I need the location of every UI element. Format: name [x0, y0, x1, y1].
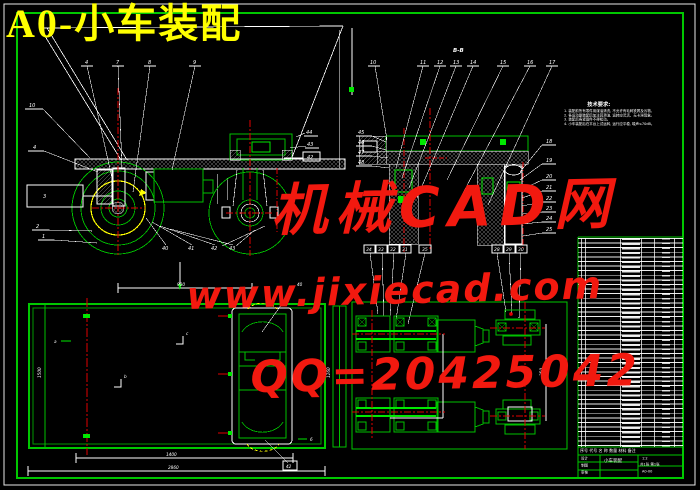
callout: 10: [370, 60, 376, 66]
section-label: B-B: [453, 48, 464, 54]
motor: [146, 169, 227, 204]
callout: 47: [358, 150, 365, 156]
bom-text-column: [622, 238, 640, 447]
technical-notes-heading: 技术要求:: [564, 102, 634, 109]
callout: 29: [506, 247, 512, 253]
callout: 45: [358, 130, 364, 136]
callout: 41: [188, 246, 194, 252]
callout: 33: [378, 247, 384, 253]
callout: 7: [116, 60, 120, 66]
bom-header: 序号 代号 名 称 数量 材料 备注: [580, 449, 636, 453]
callout: 14: [470, 60, 476, 66]
callout: 32: [390, 247, 396, 253]
dim-label: 1400: [166, 452, 177, 457]
callout: 3: [43, 194, 46, 200]
ref-label: c: [186, 331, 189, 336]
title-block-sheet: 共1张 第1张: [640, 463, 660, 467]
title-block-code: A0-00: [642, 470, 652, 474]
callout: 40: [162, 246, 168, 252]
callout: 42: [286, 464, 292, 469]
title-block-row-check: 审核: [581, 471, 588, 475]
callout: 16: [527, 60, 533, 66]
callout: 9: [193, 60, 196, 66]
title-block-name: 小车装配: [604, 459, 622, 464]
drawing-title: A0-小车装配: [6, 4, 242, 44]
callout: 12: [437, 60, 443, 66]
technical-note-line: 4. 小车装配后在平台上试运转, 运行应平稳, 噪声≤70dB。: [564, 122, 663, 126]
bom-qty-column: [662, 238, 670, 447]
callout: 10: [29, 103, 35, 109]
callout: 18: [546, 139, 552, 145]
watermark-qq-number: QQ=20425042: [250, 345, 640, 403]
dim-label: 2860: [168, 465, 179, 470]
ref-label: b: [124, 374, 127, 379]
lower-axle-assembly: [356, 398, 489, 432]
cad-drawing-canvas[interactable]: 4 7 8 9 10 4 3 2 1 40 41 42 43 44 43 42 …: [0, 0, 700, 490]
dim-label: 900: [177, 282, 185, 287]
callout: 42: [211, 246, 217, 252]
callout: 13: [453, 60, 459, 66]
callout: 2: [36, 224, 39, 230]
title-block-scale: 1:2: [642, 457, 648, 461]
callout: 44: [306, 130, 312, 136]
dim-label: 1500: [37, 367, 42, 378]
callout: 43: [307, 142, 313, 148]
callout: 35: [422, 247, 428, 253]
callout: 28: [494, 247, 500, 253]
watermark-site-name: 机械CAD网: [270, 159, 619, 247]
ref-label: 6: [310, 437, 313, 442]
callout: 4: [33, 145, 36, 151]
title-block-row-draw: 制图: [581, 464, 588, 468]
callout: 31: [402, 247, 408, 253]
ref-label: a: [54, 339, 57, 344]
callout: 42: [307, 155, 313, 161]
callout: 11: [420, 60, 426, 66]
callout: 34: [366, 247, 372, 253]
callout: 15: [500, 60, 506, 66]
callout: 17: [549, 60, 556, 66]
callout: 30: [518, 247, 524, 253]
callout: 8: [148, 60, 151, 66]
callout: 1: [42, 234, 45, 240]
title-block-row-design: 设计: [581, 457, 588, 461]
callout: 46: [358, 140, 364, 146]
callout: 4: [85, 60, 88, 66]
callout: 43: [229, 246, 235, 252]
technical-notes: 技术要求: 1. 装配前所有零件用煤油清洗, 不允许有毛刺铁屑及污物。 2. 各…: [564, 102, 663, 127]
